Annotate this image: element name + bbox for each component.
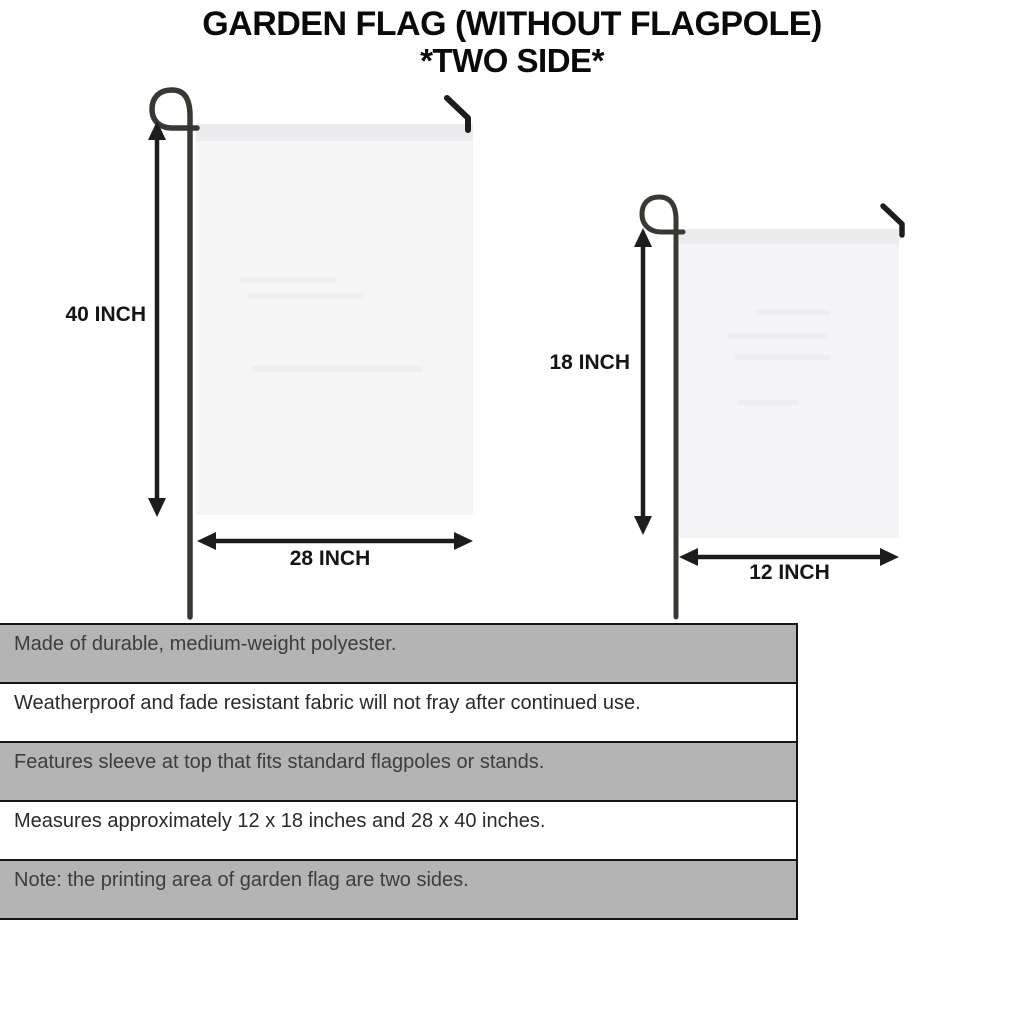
large-flag-sleeve	[196, 124, 473, 141]
large-flag-print-ghost	[240, 277, 335, 283]
small-flag-print-ghost	[735, 355, 830, 360]
feature-text: Note: the printing area of garden flag a…	[14, 869, 469, 891]
large-flag-print-ghost	[252, 366, 422, 372]
large-flag-print-ghost	[248, 293, 363, 298]
feature-row: Measures approximately 12 x 18 inches an…	[0, 800, 798, 861]
small-flag	[634, 197, 902, 617]
small-flag-pole	[642, 197, 683, 617]
feature-text: Measures approximately 12 x 18 inches an…	[14, 810, 545, 832]
feature-row: Features sleeve at top that fits standar…	[0, 741, 798, 802]
small-flag-sleeve	[679, 229, 899, 244]
small-flag-width-label: 12 INCH	[692, 561, 887, 585]
small-flag-print-ghost	[738, 400, 798, 405]
large-flag-width-label: 28 INCH	[235, 547, 425, 571]
small-flag-height-arrow	[634, 228, 652, 535]
product-infographic: GARDEN FLAG (WITHOUT FLAGPOLE) *TWO SIDE…	[0, 0, 1024, 1024]
feature-row: Made of durable, medium-weight polyester…	[0, 623, 798, 684]
small-flag-print-ghost	[755, 310, 830, 315]
large-flag	[148, 90, 473, 617]
small-flag-height-label: 18 INCH	[512, 351, 630, 375]
feature-text: Features sleeve at top that fits standar…	[14, 751, 544, 773]
large-flag-height-arrow	[148, 121, 166, 517]
feature-text: Made of durable, medium-weight polyester…	[14, 633, 396, 655]
large-flag-fabric	[196, 124, 473, 515]
feature-text: Weatherproof and fade resistant fabric w…	[14, 692, 641, 714]
feature-table: Made of durable, medium-weight polyester…	[0, 623, 798, 920]
small-flag-fabric	[679, 229, 899, 538]
feature-row: Note: the printing area of garden flag a…	[0, 859, 798, 920]
feature-row: Weatherproof and fade resistant fabric w…	[0, 682, 798, 743]
large-flag-height-label: 40 INCH	[28, 303, 146, 327]
small-flag-print-ghost	[727, 333, 827, 338]
